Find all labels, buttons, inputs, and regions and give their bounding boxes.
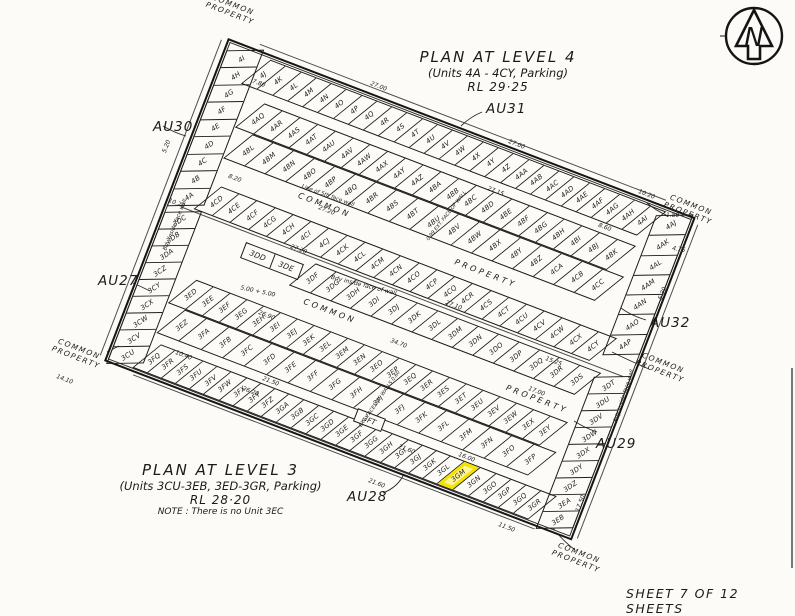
stall-label: 3DO bbox=[487, 341, 504, 357]
stall-label: 4BL bbox=[241, 143, 256, 158]
stall-label: 3FM bbox=[457, 427, 473, 442]
level4-title: PLAN AT LEVEL 4 bbox=[398, 48, 598, 66]
stall: 4AO bbox=[611, 315, 654, 335]
stall-label: 3FK bbox=[414, 410, 429, 425]
stall-label: 3DK bbox=[406, 310, 422, 325]
stall-label: 3DP bbox=[508, 349, 524, 364]
stall-label: 3FP bbox=[523, 452, 538, 466]
stall-label: 3FN bbox=[479, 435, 495, 450]
stall: 3DV bbox=[575, 411, 617, 428]
stall-label: 3EA bbox=[556, 496, 572, 510]
stall-label: 3DI bbox=[367, 295, 381, 309]
stall: 3DE bbox=[270, 254, 303, 279]
stall-label: 4AL bbox=[648, 258, 664, 272]
stall-label: 4L bbox=[288, 81, 300, 93]
stall-label: 3EZ bbox=[174, 318, 190, 333]
stall-label: 4CI bbox=[300, 229, 314, 243]
stall-label: 4V bbox=[440, 139, 452, 151]
stall-label: 3DJ bbox=[387, 303, 401, 317]
stall-label: 3CV bbox=[127, 331, 143, 346]
stall: 4C bbox=[181, 154, 223, 172]
stall-label: 3FD bbox=[261, 352, 277, 367]
stall: 3CV bbox=[114, 330, 156, 347]
stall-label: 3CW bbox=[132, 313, 150, 329]
stall-label: 4AO bbox=[624, 317, 641, 332]
label-au28: AU28 bbox=[347, 489, 387, 505]
stall-label: 4H bbox=[229, 70, 242, 82]
stall-label: 3DN bbox=[467, 333, 484, 349]
stall-label: 4AP bbox=[617, 337, 633, 351]
stall-label: 4T bbox=[410, 127, 422, 139]
stall-label: 3CX bbox=[140, 297, 156, 312]
stall: 3CZ bbox=[139, 263, 181, 280]
stall-label: 3FA bbox=[196, 327, 211, 341]
label-au30: AU30 bbox=[153, 119, 193, 135]
level4-rl: RL 29·25 bbox=[398, 80, 598, 94]
stall: 3CY bbox=[133, 279, 175, 296]
stall: 3DZ bbox=[549, 478, 591, 495]
stall-label: 4Y bbox=[486, 156, 498, 168]
stall-label: 3DM bbox=[446, 325, 463, 341]
stall-label: 4BI bbox=[570, 234, 584, 248]
stall-label: 3FL bbox=[436, 419, 451, 433]
stall-label: 3DD bbox=[248, 248, 267, 262]
stall-label: 3FC bbox=[240, 343, 256, 358]
stall: 4I bbox=[221, 51, 263, 69]
stall-label: 4CC bbox=[591, 277, 607, 292]
level3-rl: RL 28·20 bbox=[98, 493, 343, 507]
stall-label: 4BS bbox=[385, 198, 401, 213]
stall: 3CU bbox=[108, 347, 150, 363]
stall-label: 3DF bbox=[305, 271, 321, 286]
stall-label: 4BM bbox=[261, 150, 278, 166]
stall-label: 4C bbox=[196, 156, 208, 168]
stall-label: 3FH bbox=[349, 385, 365, 400]
stall-label: 4CB bbox=[570, 269, 586, 284]
level3-title: PLAN AT LEVEL 3 bbox=[98, 461, 343, 479]
leader-au31 bbox=[461, 112, 482, 126]
stall: 3CX bbox=[126, 296, 168, 313]
stall-label: 4BO bbox=[302, 166, 319, 182]
stall: 4E bbox=[194, 119, 236, 137]
stall-label: 4BQ bbox=[343, 182, 360, 198]
stall-label: 4CA bbox=[550, 261, 566, 276]
stall-label: 4G bbox=[222, 87, 235, 99]
stall-label: 3FB bbox=[218, 335, 234, 350]
stall-label: 3DZ bbox=[562, 479, 579, 494]
scan-edge-artifact bbox=[791, 368, 793, 568]
stall: 4B bbox=[174, 171, 216, 189]
stall-label: 4AN bbox=[632, 297, 649, 312]
stall-label: 3FJ bbox=[393, 403, 406, 416]
sheet-number-label: SHEET 7 OF 12 SHEETS bbox=[626, 586, 795, 616]
stall-label: 4BN bbox=[282, 158, 298, 173]
level3-note: NOTE : There is no Unit 3EC bbox=[98, 507, 343, 517]
stall-label: 3DL bbox=[427, 318, 443, 333]
stall: 4AL bbox=[634, 255, 677, 275]
stall-label: 3DU bbox=[594, 394, 611, 409]
stall-label: 4J bbox=[259, 70, 269, 80]
stall-label: 4AM bbox=[639, 277, 656, 292]
stall-label: 4AI bbox=[636, 214, 650, 228]
stall: 3DY bbox=[556, 461, 598, 478]
level4-title-block: PLAN AT LEVEL 4 (Units 4A - 4CY, Parking… bbox=[398, 48, 598, 94]
stall-label: 3DH bbox=[345, 286, 362, 302]
stall-label: 3CY bbox=[146, 280, 162, 294]
stall-label: 4Z bbox=[501, 162, 513, 174]
stall-label: 3EJ bbox=[285, 327, 299, 340]
stall-label: 4X bbox=[470, 150, 482, 162]
stall: 4F bbox=[201, 102, 243, 120]
stall-label: 4B bbox=[189, 174, 201, 186]
stall-label: 3FO bbox=[501, 444, 517, 459]
north-letter: N bbox=[744, 23, 763, 53]
stall-label: 4CJ bbox=[318, 236, 332, 250]
stall-label: 3DT bbox=[601, 378, 617, 393]
stall-label: 3FE bbox=[283, 360, 298, 374]
stall-label: 4BJ bbox=[587, 241, 601, 255]
stall-label: 4AK bbox=[655, 238, 671, 252]
stall: 4AN bbox=[619, 295, 662, 315]
stall-label: 4BK bbox=[604, 247, 620, 262]
stall: 3EB bbox=[537, 511, 579, 527]
stall-label: 3DY bbox=[569, 462, 585, 477]
label-au27: AU27 bbox=[98, 273, 138, 289]
stall-label: 4P bbox=[349, 104, 361, 116]
stall-label: 4K bbox=[273, 75, 285, 87]
stall: 4H bbox=[214, 68, 256, 86]
stall-label: 3EI bbox=[268, 321, 282, 334]
stall-label: 4BP bbox=[323, 175, 339, 190]
stall-label: 4BY bbox=[509, 246, 525, 261]
stall-label: 4BX bbox=[488, 238, 504, 253]
stall-label: 4BZ bbox=[529, 253, 545, 268]
stall-label: 4BV bbox=[447, 222, 463, 237]
north-arrow-icon: N bbox=[720, 2, 788, 70]
stall-label: 3FF bbox=[305, 369, 320, 383]
dimension-label: 1.80 bbox=[666, 212, 679, 219]
level3-title-block: PLAN AT LEVEL 3 (Units 3CU-3EB, 3ED-3GR,… bbox=[98, 461, 343, 517]
label-au32: AU32 bbox=[650, 315, 690, 331]
stall-label: 3DS bbox=[569, 372, 585, 387]
stall-label: 3EB bbox=[550, 512, 566, 526]
stall-label: 4BT bbox=[406, 206, 422, 221]
stall-label: 3DE bbox=[277, 259, 295, 273]
stall-label: 3DQ bbox=[528, 356, 545, 372]
stall-label: 4CY bbox=[586, 339, 602, 354]
stall-label: 4R bbox=[379, 115, 391, 127]
stall-label: 4I bbox=[237, 54, 247, 64]
stall-label: 3CZ bbox=[152, 263, 168, 278]
stall-label: 3CU bbox=[120, 347, 137, 362]
stall-label: 4BR bbox=[364, 190, 380, 205]
stall-label: 3EY bbox=[537, 423, 552, 438]
stall: 4D bbox=[188, 137, 230, 155]
stall-label: 3DV bbox=[588, 411, 605, 426]
stall-label: 4BW bbox=[466, 229, 484, 245]
level4-units-range: (Units 4A - 4CY, Parking) bbox=[398, 66, 598, 80]
stall-label: 3FG bbox=[327, 377, 343, 392]
stall: 4G bbox=[207, 85, 249, 103]
stall-label: 4F bbox=[216, 105, 228, 116]
stall: 3CW bbox=[120, 313, 162, 330]
stall-label: 3DX bbox=[575, 445, 592, 460]
stall-label: 4S bbox=[394, 121, 406, 133]
stall-label: 4D bbox=[202, 139, 215, 151]
stall-label: 4E bbox=[209, 122, 221, 134]
label-au29: AU29 bbox=[596, 436, 636, 452]
stall-label: 4AJ bbox=[664, 219, 678, 232]
label-au31: AU31 bbox=[486, 101, 526, 117]
level3-units-range: (Units 3CU-3EB, 3ED-3GR, Parking) bbox=[98, 479, 343, 493]
